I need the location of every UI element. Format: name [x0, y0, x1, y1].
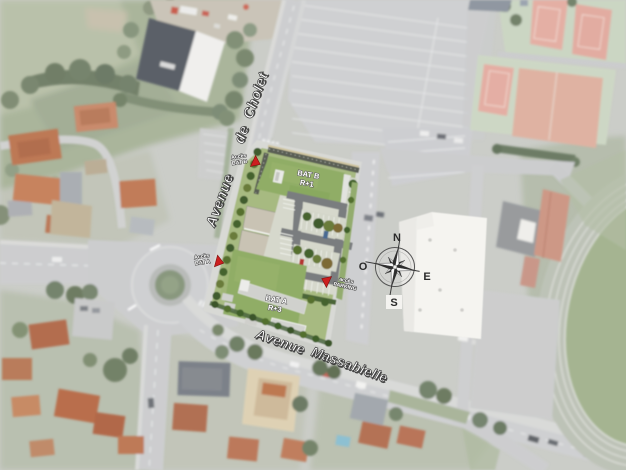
svg-text:O: O [359, 261, 368, 273]
svg-text:N: N [393, 232, 401, 244]
svg-text:S: S [390, 297, 397, 309]
svg-text:E: E [423, 271, 430, 283]
